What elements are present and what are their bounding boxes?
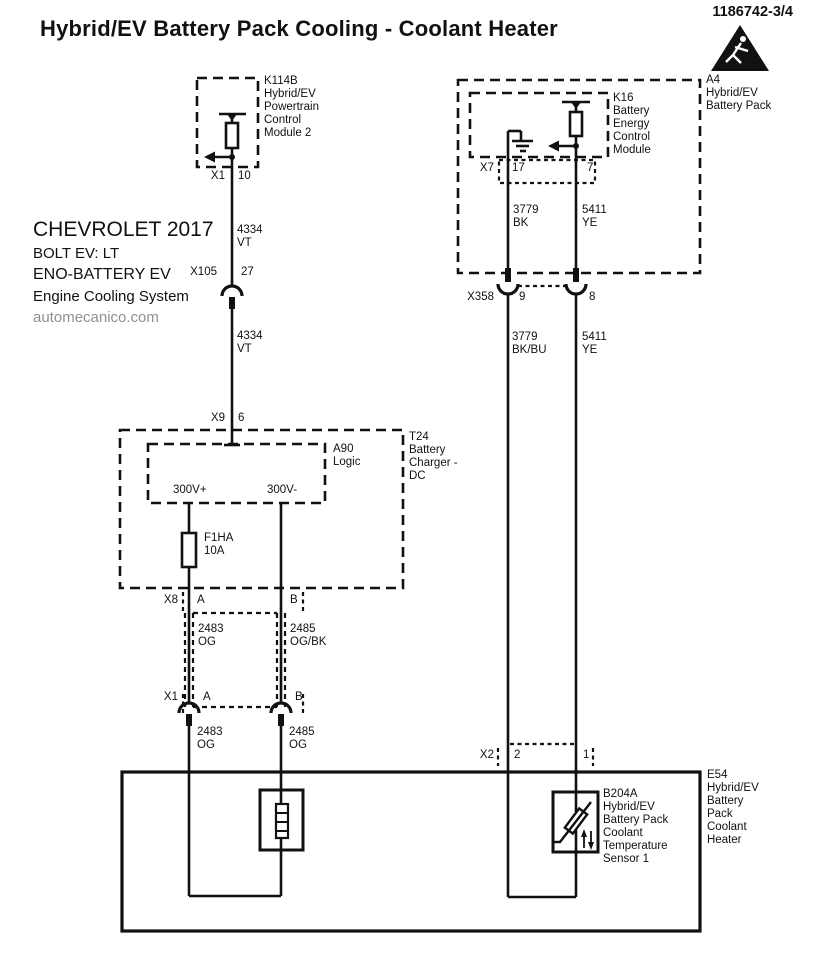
k114b-driver-symbol (204, 114, 246, 163)
pin-x1-b: B (295, 691, 303, 704)
vehicle-subsystem: Engine Cooling System (33, 288, 189, 305)
wire-label-2485-ogbk-upper: 2485 OG/BK (290, 623, 326, 649)
a4-component-box (458, 80, 700, 273)
wire-label-5411-ye-lower: 5411 YE (582, 331, 607, 357)
watermark-source: automecanico.com (33, 309, 159, 326)
pin-x1-a: A (203, 691, 211, 704)
pin-x2-1: 1 (583, 749, 589, 762)
pin-x8-a: A (197, 594, 205, 607)
electric-shock-warning-icon (711, 25, 769, 71)
wire-label-4334-vt-lower: 4334 VT (237, 330, 263, 356)
pin-x1-top-10: 10 (238, 170, 251, 183)
t24-label: T24 Battery Charger - DC (409, 431, 458, 483)
connector-x9-name: X9 (203, 412, 225, 425)
pin-x9-6: 6 (238, 412, 244, 425)
k16-label: K16 Battery Energy Control Module (613, 92, 651, 157)
wire-label-3779-bk: 3779 BK (513, 204, 539, 230)
connector-x7-name: X7 (470, 162, 494, 175)
pin-x358-9: 9 (519, 291, 525, 304)
document-number: 1186742-3/4 (640, 4, 793, 20)
ground-symbol (508, 131, 533, 268)
connector-x105-name: X105 (180, 266, 217, 279)
pin-x2-2: 2 (514, 749, 520, 762)
pin-x8-b: B (290, 594, 298, 607)
connector-x1-top-name: X1 (203, 170, 225, 183)
terminal-300v-minus: 300V- (267, 484, 297, 497)
connector-x1-bottom-name: X1 (152, 691, 178, 704)
a4-label: A4 Hybrid/EV Battery Pack (706, 74, 771, 113)
terminal-300v-plus: 300V+ (173, 484, 207, 497)
pin-x7-7: 7 (587, 162, 593, 175)
page-title: Hybrid/EV Battery Pack Cooling - Coolant… (40, 16, 558, 42)
wiring-diagram-page: Hybrid/EV Battery Pack Cooling - Coolant… (0, 0, 820, 962)
b204a-label: B204A Hybrid/EV Battery Pack Coolant Tem… (603, 788, 668, 866)
x105-inline-connector-symbol (222, 286, 242, 309)
a90-label: A90 Logic (333, 443, 361, 469)
e54-label: E54 Hybrid/EV Battery Pack Coolant Heate… (707, 769, 759, 847)
connector-x8-name: X8 (152, 594, 178, 607)
vehicle-system: ENO-BATTERY EV (33, 266, 171, 284)
wire-label-2483-og-upper: 2483 OG (198, 623, 224, 649)
wire-label-4334-vt-upper: 4334 VT (237, 224, 263, 250)
connector-x358-name: X358 (458, 291, 494, 304)
connector-x2-name: X2 (470, 749, 494, 762)
wire-label-3779-bkbu: 3779 BK/BU (512, 331, 547, 357)
k16-driver-symbol (548, 102, 590, 268)
f1ha-label: F1HA 10A (204, 532, 233, 558)
pin-x105-27: 27 (241, 266, 254, 279)
vehicle-make-year: CHEVROLET 2017 (33, 218, 214, 242)
wire-label-5411-ye-upper: 5411 YE (582, 204, 607, 230)
wire-label-2483-og-lower: 2483 OG (197, 726, 223, 752)
t24-component-box (120, 430, 403, 588)
sensor-circuit-wires (508, 295, 576, 897)
fuse-f1ha-symbol (182, 503, 196, 703)
k114b-label: K114B Hybrid/EV Powertrain Control Modul… (264, 75, 319, 140)
vehicle-model: BOLT EV: LT (33, 245, 119, 262)
x2-connector-symbol (498, 744, 593, 766)
pin-x7-17: 17 (512, 162, 525, 175)
wire-label-2485-og-lower: 2485 OG (289, 726, 315, 752)
pin-x358-8: 8 (589, 291, 595, 304)
